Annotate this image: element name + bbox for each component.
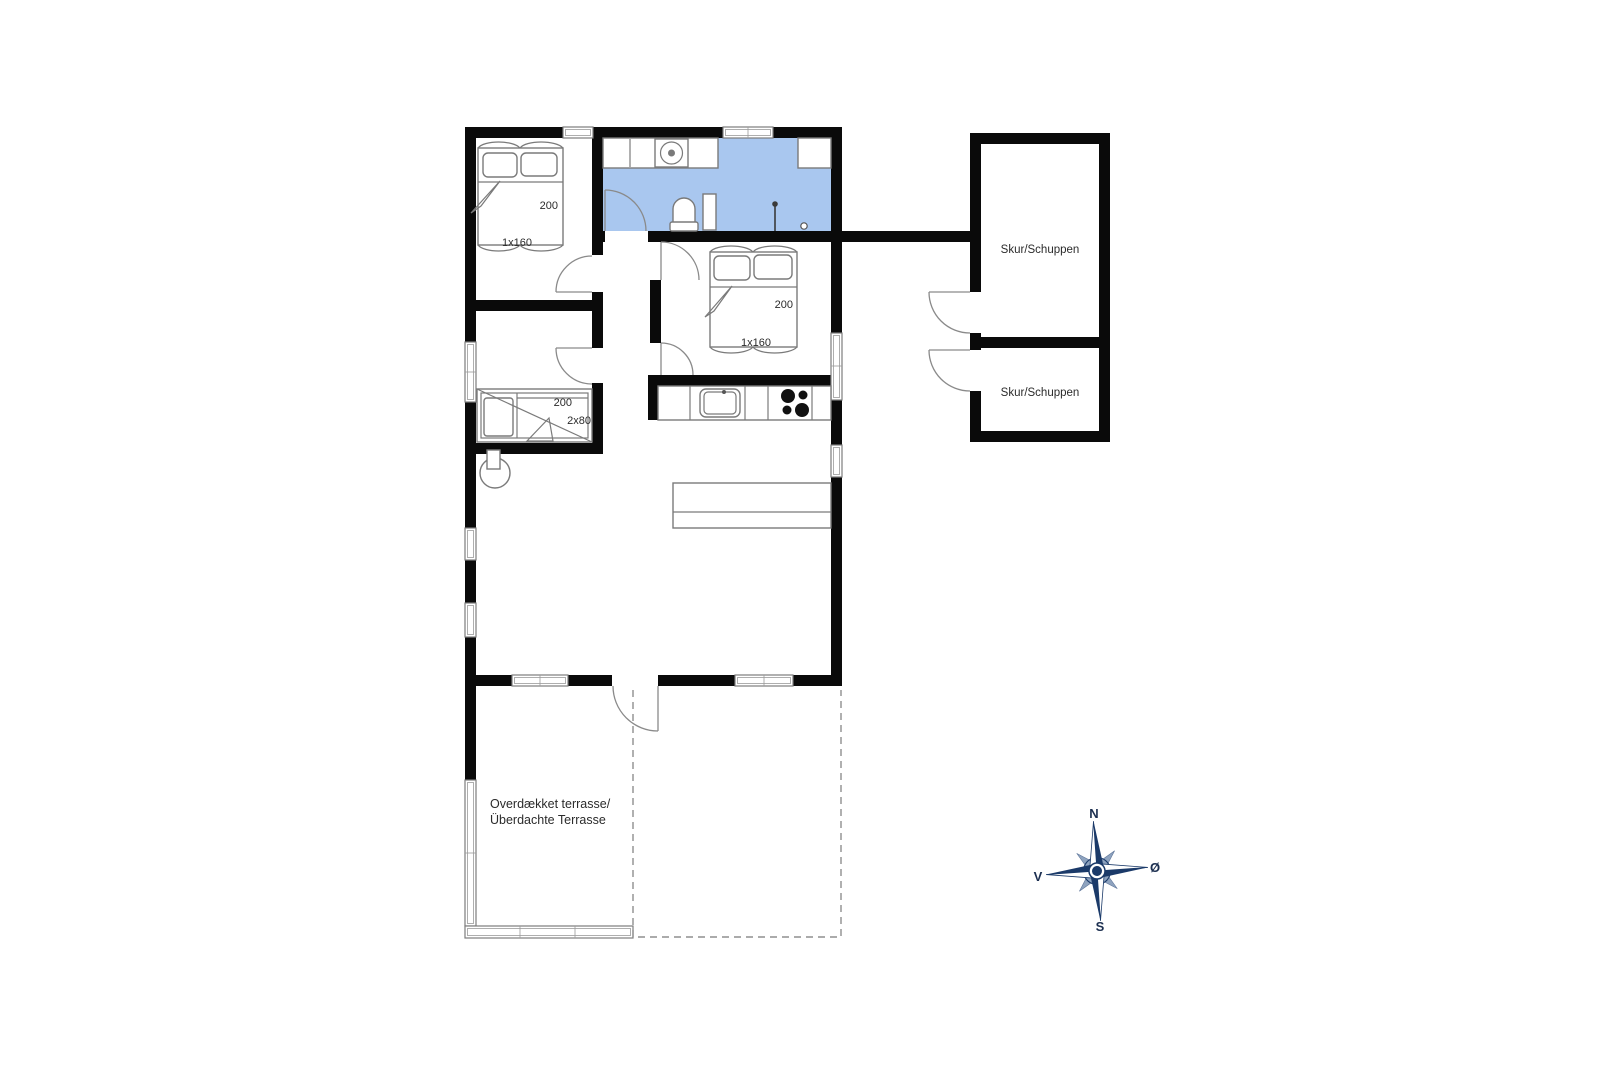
- washing-machine-icon: [655, 139, 688, 167]
- shed1-label: Skur/Schuppen: [1001, 244, 1080, 256]
- bunkroom-bed-size-label: 2x80: [567, 415, 591, 427]
- wall-segment: [842, 231, 970, 242]
- window: [735, 675, 793, 686]
- terrace-label-line2: Überdachte Terrasse: [490, 813, 606, 827]
- dining-table: [673, 483, 831, 528]
- open-terrace-outline: [633, 690, 841, 937]
- window: [723, 127, 773, 138]
- wall-segment: [648, 375, 658, 420]
- bathroom-counter: [798, 138, 831, 168]
- door-swing: [929, 350, 970, 391]
- bedroom1-bed-size-label: 1x160: [502, 237, 532, 249]
- wall-segment: [592, 311, 603, 348]
- kitchen-sink-icon: [700, 389, 740, 417]
- wall-segment: [970, 133, 981, 292]
- wall-segment: [648, 231, 842, 242]
- wall-segment: [650, 280, 661, 343]
- door-swing: [556, 348, 592, 384]
- compass-west-label: V: [1034, 869, 1043, 884]
- bedroom2-bed-size-label: 1x160: [741, 337, 771, 349]
- window: [831, 445, 842, 477]
- wall-segment: [465, 443, 603, 454]
- shed2-label: Skur/Schuppen: [1001, 387, 1080, 399]
- door-swing: [661, 242, 699, 280]
- kitchen-counter: [658, 386, 831, 420]
- door-swing: [556, 256, 592, 292]
- floor-drain-icon: [801, 223, 807, 229]
- wall-segment: [831, 127, 842, 686]
- wall-segment: [592, 231, 605, 242]
- window: [465, 342, 476, 402]
- toilet-icon: [670, 198, 698, 231]
- wall-segment: [465, 686, 476, 780]
- terrace-label-line1: Overdækket terrasse/: [490, 797, 611, 811]
- pillow: [714, 256, 750, 280]
- window: [465, 528, 476, 560]
- wall-segment: [970, 337, 1110, 348]
- wall-segment: [465, 127, 842, 138]
- pillow: [521, 153, 557, 176]
- bedroom2-bed-length-label: 200: [775, 299, 793, 311]
- wood-stove-icon: [480, 450, 510, 488]
- pillow: [754, 255, 792, 279]
- wall-segment: [970, 133, 1110, 144]
- floorplan-page: 200 1x160 200 1x160 200 2x80 Skur/Schupp…: [0, 0, 1600, 1066]
- door-swing: [661, 343, 693, 375]
- pillow: [483, 153, 517, 177]
- window: [512, 675, 568, 686]
- door-swing: [929, 292, 970, 333]
- compass-north-label: N: [1089, 806, 1098, 821]
- terrace-post-wall: [465, 780, 476, 926]
- wall-segment: [465, 300, 603, 311]
- compass-east-label: Ø: [1150, 860, 1160, 875]
- bunkroom-bed-length-label: 200: [554, 397, 572, 409]
- window: [465, 603, 476, 637]
- shower-partition: [703, 194, 716, 230]
- bedroom1-double-bed: [471, 142, 563, 251]
- window: [563, 127, 593, 138]
- bedroom1-bed-length-label: 200: [540, 200, 558, 212]
- window: [831, 333, 842, 400]
- compass-south-label: S: [1096, 919, 1105, 934]
- door-swing: [613, 686, 658, 731]
- wall-segment: [1099, 133, 1110, 442]
- floorplan-drawing: 200 1x160 200 1x160 200 2x80 Skur/Schupp…: [0, 0, 1600, 1066]
- wall-segment: [970, 431, 1110, 442]
- compass-rose-icon: N S V Ø: [1034, 806, 1160, 934]
- terrace-edge-wall: [465, 926, 633, 938]
- wall-segment: [648, 375, 842, 386]
